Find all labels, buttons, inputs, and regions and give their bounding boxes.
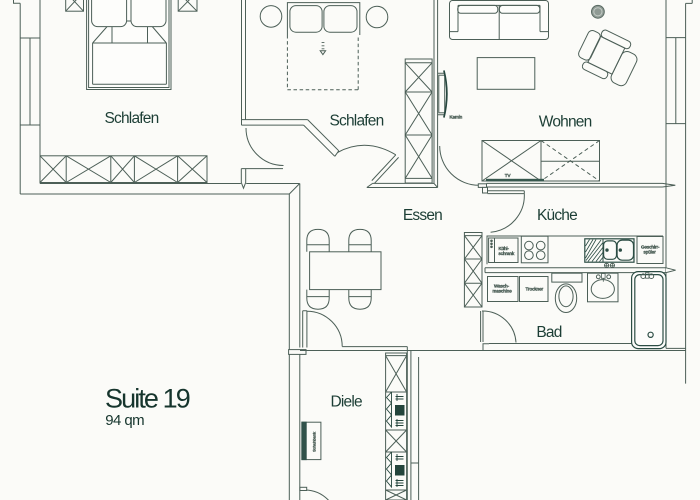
svg-text:maschine: maschine	[493, 289, 513, 294]
svg-text:Schuhbank: Schuhbank	[312, 432, 317, 452]
svg-text:Küche: Küche	[537, 207, 577, 224]
svg-text:Diele: Diele	[331, 394, 363, 411]
svg-text:Suite 19: Suite 19	[105, 384, 190, 414]
svg-text:Kamin: Kamin	[450, 115, 463, 120]
svg-text:schrank: schrank	[499, 251, 516, 256]
svg-text:Trockner: Trockner	[526, 287, 544, 292]
svg-text:Wasch-: Wasch-	[494, 284, 510, 289]
svg-text:Wohnen: Wohnen	[539, 114, 592, 131]
svg-text:Schlafen: Schlafen	[330, 112, 384, 129]
svg-text:94 qm: 94 qm	[105, 412, 144, 429]
svg-text:Essen: Essen	[403, 207, 442, 224]
svg-text:Schlafen: Schlafen	[105, 110, 159, 127]
svg-text:Kühl-: Kühl-	[499, 246, 510, 251]
svg-text:spüler: spüler	[644, 250, 657, 255]
svg-text:Geschirr-: Geschirr-	[641, 245, 660, 250]
svg-text:TV: TV	[505, 173, 511, 178]
svg-text:Bad: Bad	[536, 324, 561, 341]
